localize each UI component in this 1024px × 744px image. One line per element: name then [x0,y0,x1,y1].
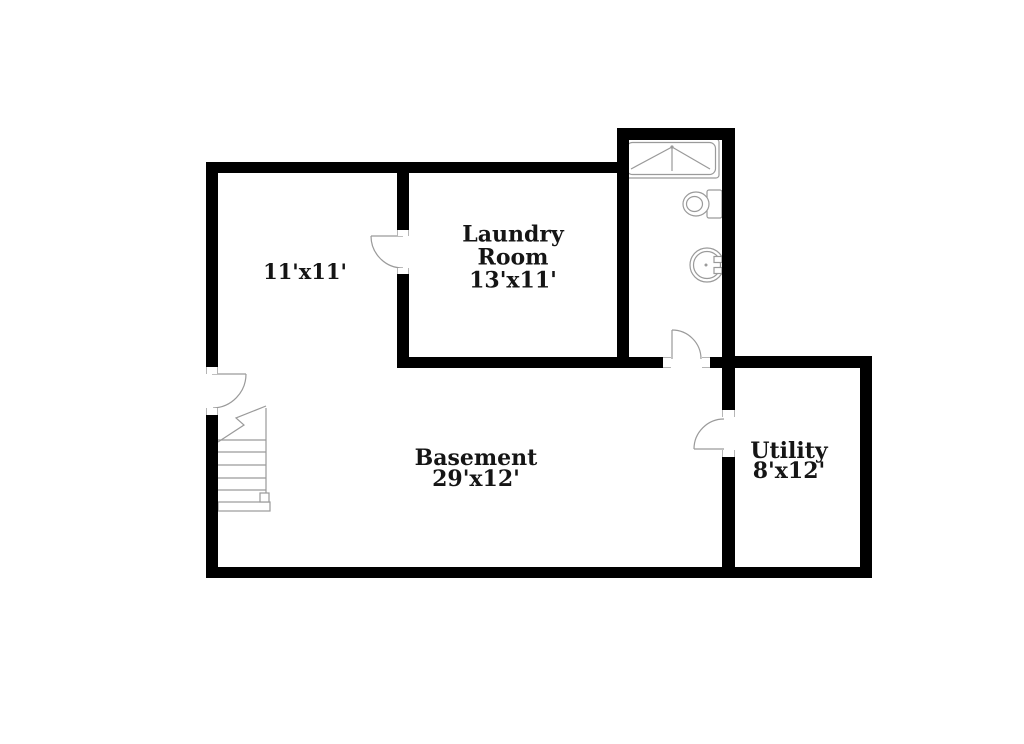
wall-bathroom-left [617,128,629,368]
wall-stub [710,357,722,368]
wall-laundry-bottom [397,357,663,368]
door-jamb [206,408,218,415]
room-dimension-text: 8'x12' [750,461,827,481]
wall-bottom [206,567,872,578]
sink-icon [690,248,724,282]
wall-bathroom-top [617,128,735,140]
wall-left-lower [206,415,218,578]
room-dimension-text: 29'x12' [415,469,538,490]
wall-right-lower [722,457,735,578]
wall-utility-top [722,356,872,368]
door-jamb [722,410,735,417]
door-jamb [702,357,710,368]
door-jamb [722,450,735,457]
wall-left-upper [206,162,218,367]
room-label-basement: Basement 29'x12' [415,448,538,490]
room-label-11x11: 11'x11' [263,261,347,283]
room-label-laundry: Laundry Room 13'x11' [462,224,563,293]
utility-door-swing [694,419,724,449]
room-dimension-text: 13'x11' [462,270,563,293]
shower-icon [622,139,719,178]
wall-interior-upper [397,173,409,230]
wall-interior-lower [397,274,409,368]
room-dimension-text: 11'x11' [263,261,347,283]
toilet-icon [683,190,722,218]
door-jamb [663,357,671,368]
wall-top-main [206,162,629,173]
door-jamb [397,230,409,236]
door-jamb [397,268,409,274]
bathroom-door-swing [672,330,701,359]
door-jamb [206,367,218,374]
wall-utility-right [860,356,872,578]
room-door-swing [371,236,403,268]
staircase-icon [218,406,270,511]
stair-door-swing [212,374,246,408]
room-name-text: Laundry [462,224,563,247]
room-name-text: Room [462,247,563,270]
room-label-utility: Utility 8'x12' [750,441,827,481]
floor-plan-canvas: 11'x11' Laundry Room 13'x11' Basement 29… [0,0,1024,744]
